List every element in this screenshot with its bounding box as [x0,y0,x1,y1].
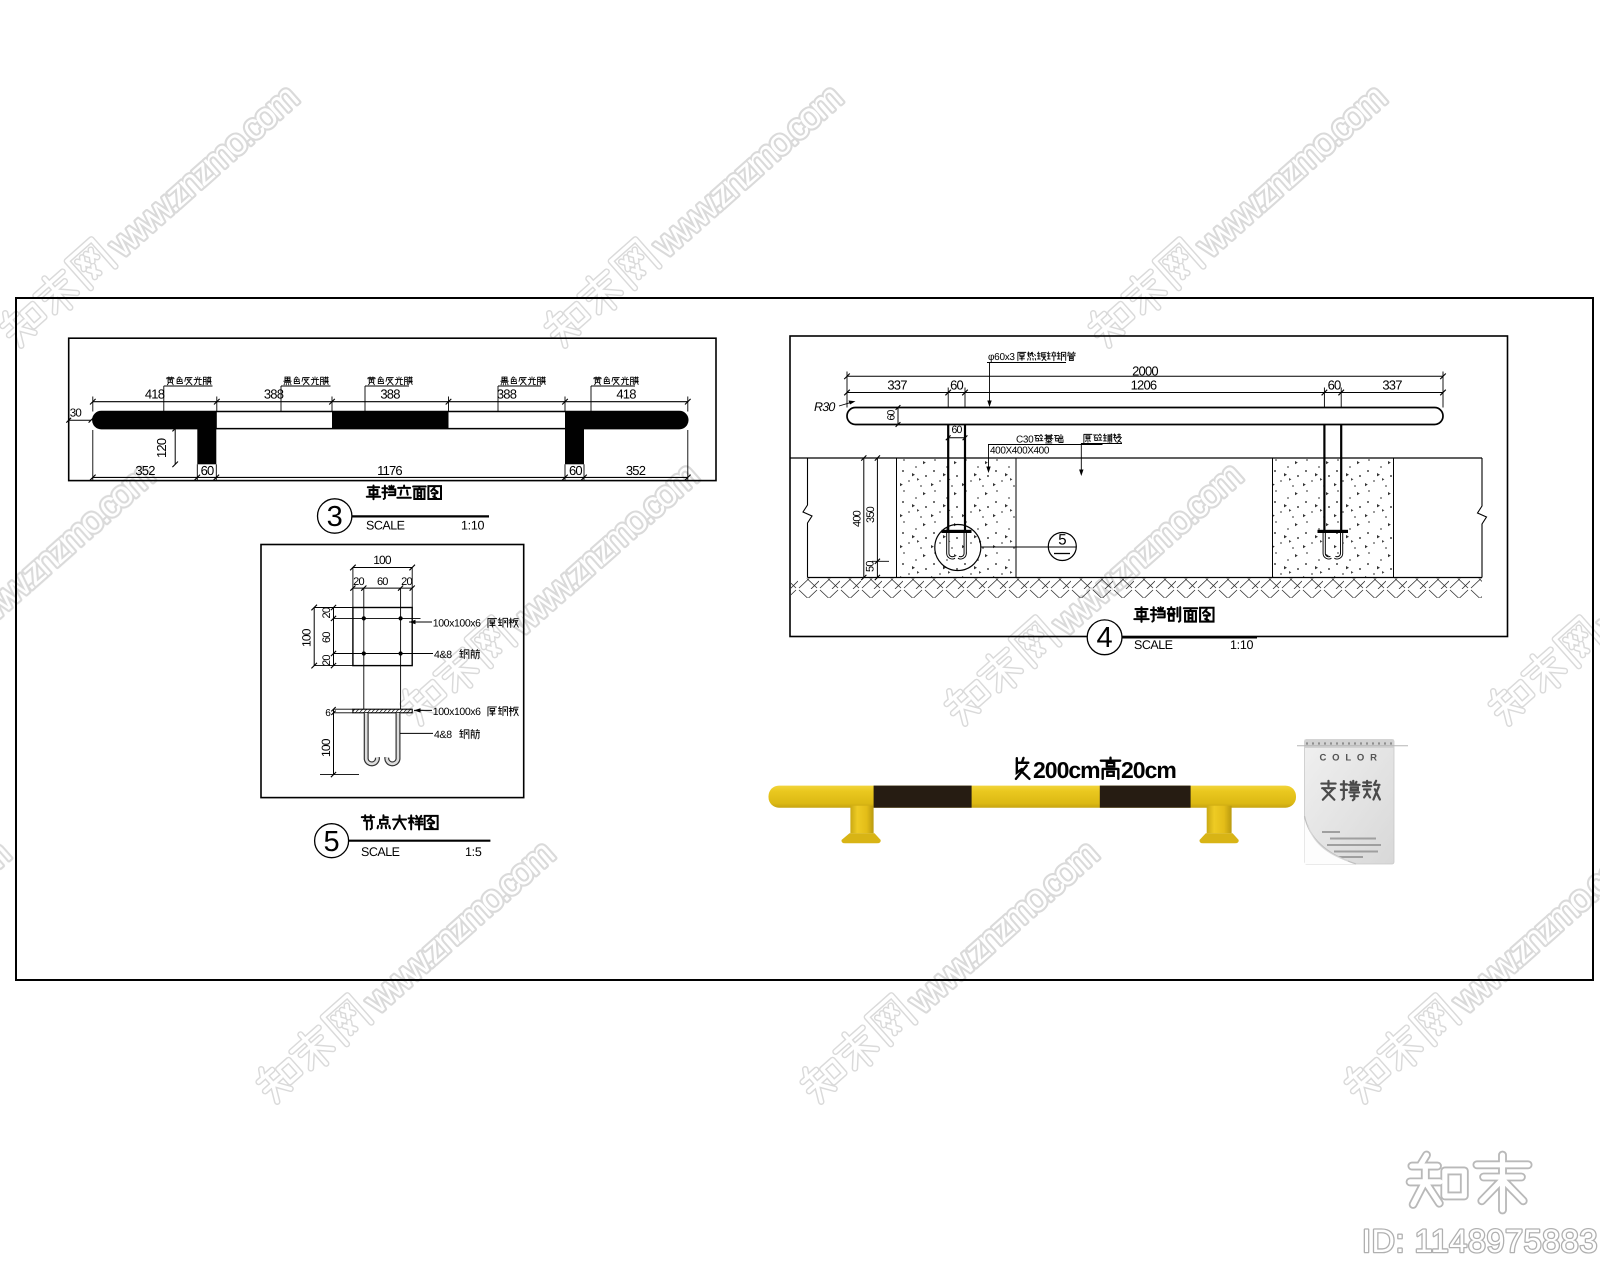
svg-text:60: 60 [569,463,582,478]
svg-text:100x100x6: 100x100x6 [433,706,481,718]
svg-text:20cm: 20cm [1121,757,1176,783]
svg-text:1:5: 1:5 [465,845,482,859]
svg-text:60: 60 [321,632,333,643]
svg-text:100: 100 [300,628,314,647]
svg-text:100: 100 [319,738,333,757]
svg-text:388: 388 [380,387,400,402]
svg-text:3: 3 [327,501,343,533]
svg-text:100x100x6: 100x100x6 [433,618,481,630]
svg-text:60: 60 [951,424,962,436]
svg-text:418: 418 [145,387,165,402]
svg-text:φ60x3: φ60x3 [988,352,1015,363]
svg-text:1:10: 1:10 [461,519,484,533]
svg-text:R30: R30 [814,400,835,414]
svg-text:352: 352 [626,463,646,478]
svg-text:418: 418 [616,387,636,402]
svg-text:4&8: 4&8 [434,729,452,741]
svg-text:4: 4 [1097,622,1113,654]
svg-text:120: 120 [154,438,169,458]
svg-text:60: 60 [201,463,214,478]
svg-text:ID: 1148975883: ID: 1148975883 [1362,1223,1598,1259]
svg-text:400: 400 [852,510,864,527]
svg-text:60: 60 [950,378,963,393]
svg-text:400X400X400: 400X400X400 [990,445,1050,456]
svg-text:352: 352 [135,463,155,478]
svg-text:SCALE: SCALE [366,519,405,533]
svg-text:200cm: 200cm [1033,757,1100,783]
svg-text:5: 5 [324,826,340,858]
svg-text:337: 337 [1382,378,1402,393]
svg-text:SCALE: SCALE [1134,638,1173,652]
svg-text:1206: 1206 [1131,378,1157,393]
svg-text:60: 60 [886,409,898,420]
svg-text:SCALE: SCALE [361,845,400,859]
svg-text:388: 388 [497,387,517,402]
svg-text:C O L O R: C O L O R [1319,753,1378,764]
svg-text:100: 100 [373,553,392,567]
svg-text:1176: 1176 [377,463,402,478]
svg-text:30: 30 [70,408,82,420]
svg-text:60: 60 [1328,378,1341,393]
svg-text:20: 20 [401,576,412,588]
svg-text:20: 20 [321,655,333,666]
svg-text:20: 20 [321,607,333,618]
svg-text:20: 20 [353,576,364,588]
svg-text:5: 5 [1058,532,1066,549]
svg-text:4&8: 4&8 [434,649,452,661]
svg-text:337: 337 [887,378,907,393]
svg-text:50: 50 [865,561,877,572]
svg-text:C30: C30 [1016,435,1034,446]
svg-text:1:10: 1:10 [1230,638,1253,652]
svg-text:350: 350 [865,506,877,523]
svg-text:2000: 2000 [1132,364,1158,379]
svg-text:60: 60 [377,576,388,588]
